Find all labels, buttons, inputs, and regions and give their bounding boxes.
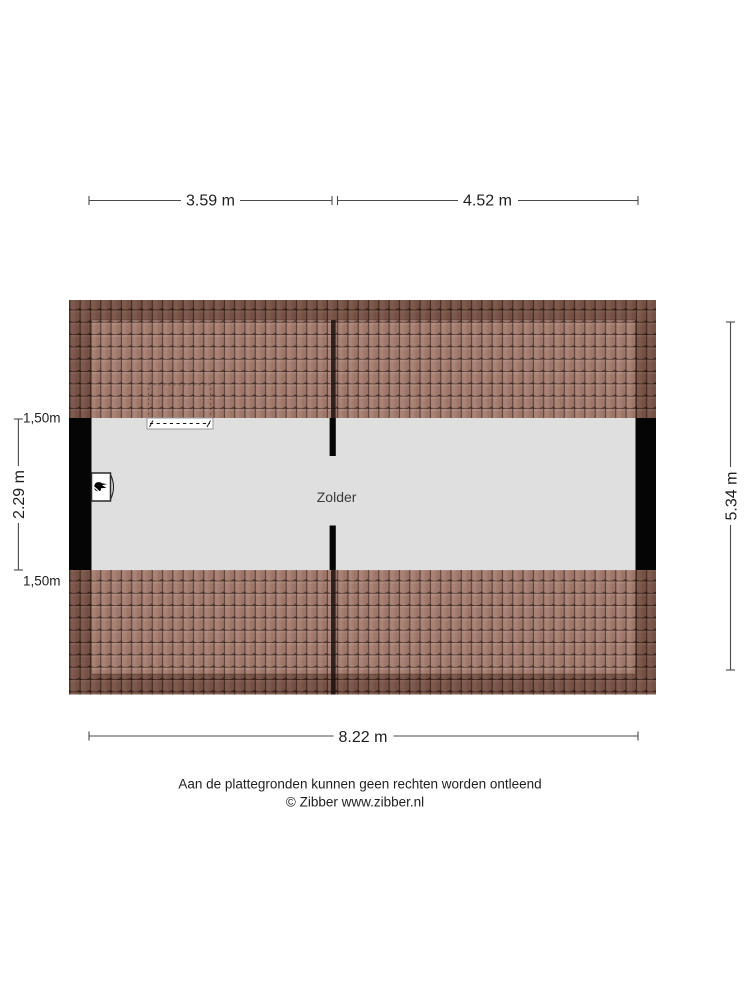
svg-text:5.34 m: 5.34 m [724, 472, 741, 521]
svg-text:Zolder: Zolder [317, 489, 357, 505]
svg-text:4.52 m: 4.52 m [463, 193, 512, 210]
svg-text:Aan de plattegronden kunnen ge: Aan de plattegronden kunnen geen rechten… [178, 777, 541, 792]
svg-text:© Zibber www.zibber.nl: © Zibber www.zibber.nl [286, 795, 424, 810]
svg-text:1,50m: 1,50m [23, 411, 61, 426]
svg-text:3.59 m: 3.59 m [186, 193, 235, 210]
svg-text:2.29 m: 2.29 m [11, 470, 28, 519]
svg-text:8.22 m: 8.22 m [339, 729, 388, 746]
svg-text:1,50m: 1,50m [23, 574, 61, 589]
